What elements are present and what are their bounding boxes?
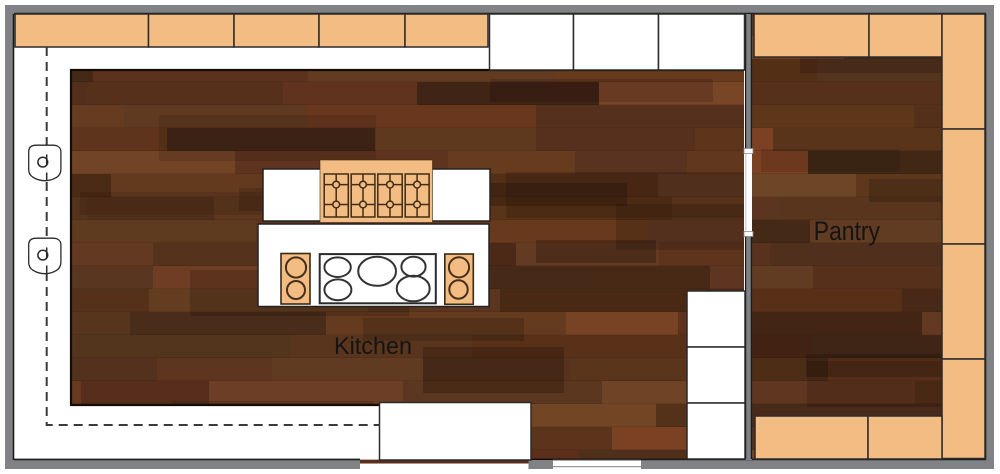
svg-text:Pantry: Pantry bbox=[814, 216, 881, 246]
svg-text:Kitchen: Kitchen bbox=[334, 333, 412, 360]
